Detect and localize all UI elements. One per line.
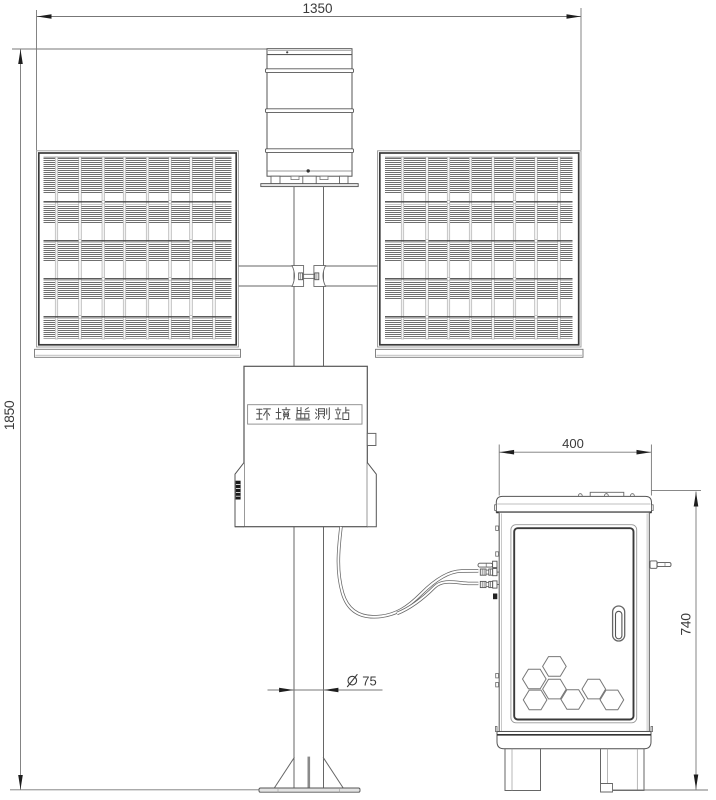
- svg-text:75: 75: [362, 673, 376, 688]
- svg-text:1850: 1850: [1, 400, 17, 430]
- svg-text:1350: 1350: [302, 1, 332, 16]
- svg-text:740: 740: [678, 613, 694, 636]
- svg-text:400: 400: [562, 436, 584, 451]
